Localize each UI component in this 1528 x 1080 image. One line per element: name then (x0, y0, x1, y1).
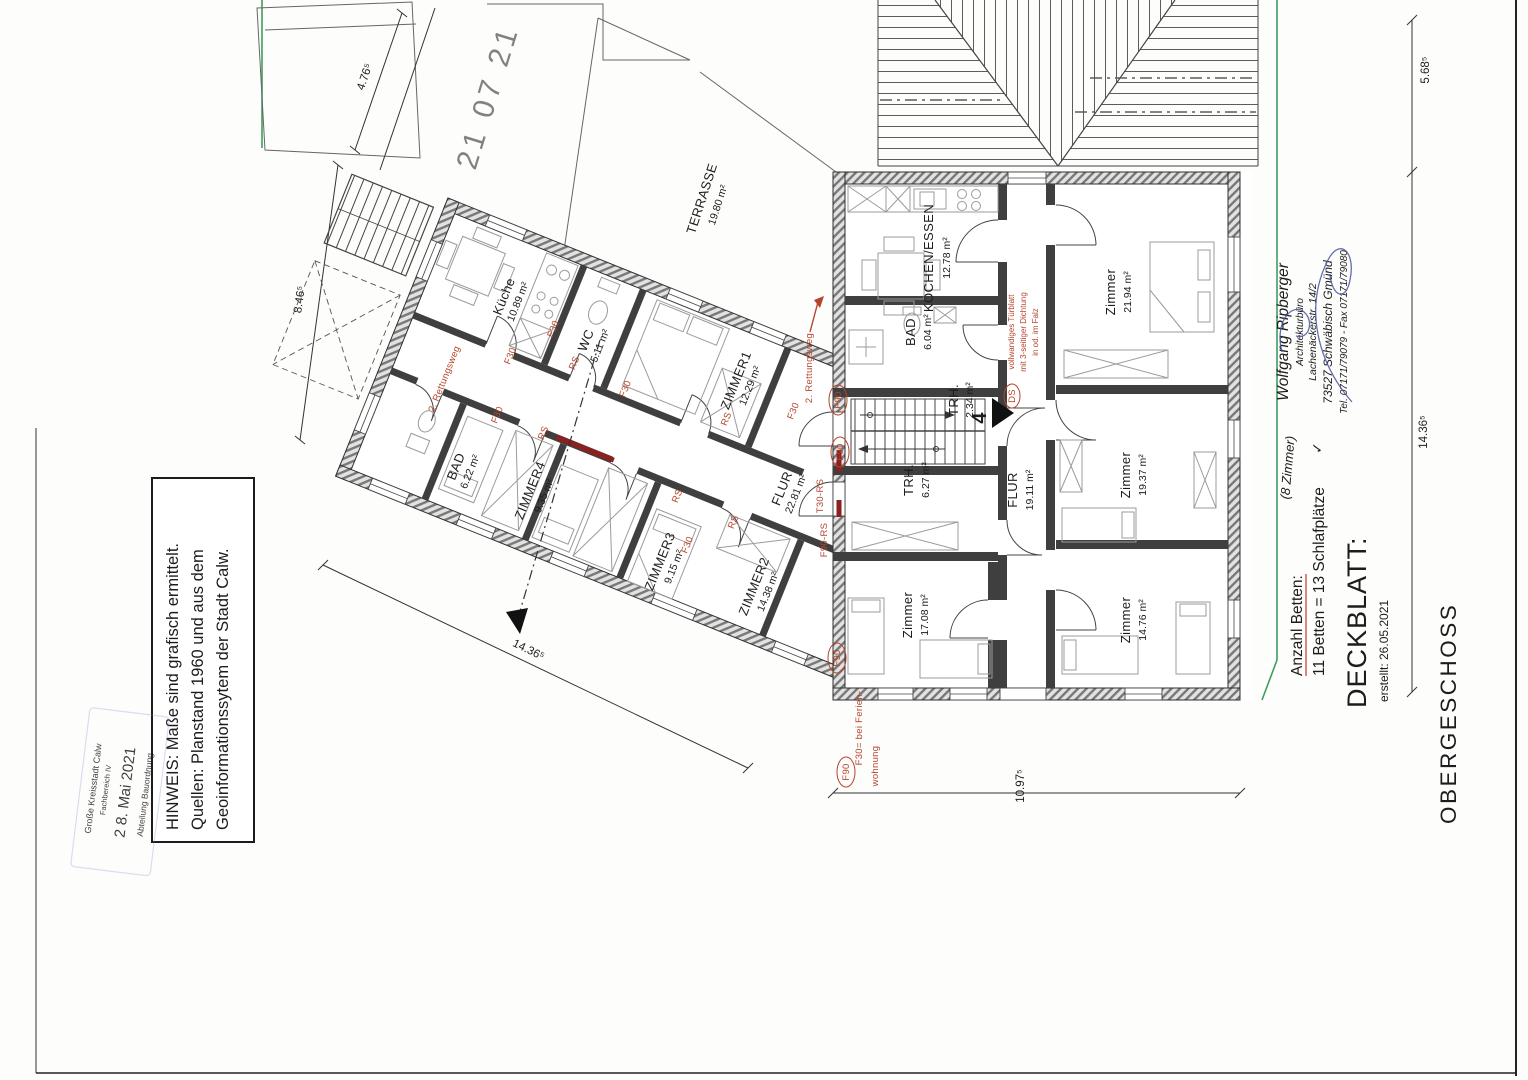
f90-circled-4: F90 (837, 757, 855, 787)
area-trh-gross: 6.27 m² (920, 462, 932, 498)
stair-storey-number: 4 (969, 412, 991, 424)
hinweis-line1: HINWEIS: Maße sind grafisch ermittelt. (164, 543, 182, 830)
label-zimmer-sw: Zimmer (900, 592, 915, 639)
label-flur-rechts: FLUR (1005, 472, 1020, 508)
dim-top-right: 5.68⁵ (1420, 56, 1432, 83)
dim-right: 14.36⁵ (1418, 415, 1430, 449)
door-note-line1: vollwandiges Türblatt (1007, 294, 1016, 370)
architect-block: Wolfgang Ripberger Architekturbüro Lache… (1275, 249, 1352, 414)
area-zimmer-no: 21.94 m² (1122, 271, 1134, 313)
roof-plan (878, 0, 1258, 166)
area-zimmer-so: 14.76 m² (1137, 599, 1149, 641)
label-bad-rechts: BAD (903, 318, 918, 346)
dim-top-left: 4.76⁵ (355, 62, 375, 92)
stamp-d ept-top: Fachbereich IV (98, 764, 113, 815)
svg-text:F90: F90 (832, 649, 843, 666)
dim-left: 8.46⁵ (292, 285, 308, 314)
dim-bottom: 10.97⁵ (1015, 769, 1027, 803)
floor-title: OBERGESCHOSS (1436, 603, 1461, 824)
title-block: DECKBLATT: erstellt: 26.05.2021 OBERGESC… (1342, 536, 1461, 824)
handwritten-room-count: (8 Zimmer) (1277, 435, 1297, 500)
hinweis-line2: Quellen: Planstand 1960 und aus dem (189, 549, 207, 830)
hinweis-line3: Geoinformationssytem der Stadt Calw. (214, 548, 232, 830)
bed-count-value: 11 Betten = 13 Schlafplätze (1311, 487, 1328, 676)
label-zimmer-so: Zimmer (1118, 597, 1133, 644)
scan-watermark: 21 07 21 (450, 21, 525, 173)
svg-text:F90: F90 (833, 391, 844, 408)
ferien-note-line1: F30= bei Ferien- (854, 691, 865, 766)
neighbor-building-outline (257, 2, 420, 158)
ferien-note-line2: wohnung (870, 746, 881, 788)
svg-text:F90: F90 (835, 443, 846, 460)
door-note-line3: in od. im Falz (1031, 308, 1040, 356)
svg-text:2. Rettungsweg: 2. Rettungsweg (804, 333, 815, 403)
svg-text:F90: F90 (841, 763, 852, 780)
label-trh-gross: TRH. (901, 464, 916, 496)
architect-phone: Tel. 07171/79079 - Fax 07171/79080 (1339, 250, 1350, 414)
door-note-line2: mit 3-seitiger Dichtung (1019, 292, 1028, 372)
f90-rs-label: F90-RS (819, 523, 830, 558)
label-kochen: KOCHEN/ESSEN (921, 204, 936, 312)
created-date: erstellt: 26.05.2021 (1377, 600, 1391, 702)
area-kochen: 12.78 m² (941, 237, 953, 279)
architect-office: Architekturbüro (1295, 298, 1306, 367)
bed-count-heading: Anzahl Betten: (1289, 575, 1306, 676)
external-stair (324, 174, 433, 276)
label-zimmer-o: Zimmer (1118, 452, 1133, 499)
svg-text:DS: DS (1007, 389, 1018, 403)
area-zimmer-sw: 17.08 m² (919, 594, 931, 636)
architect-city: 73527 Schwäbisch Gmünd (1321, 260, 1335, 404)
bed-count-note: Anzahl Betten: 11 Betten = 13 Schlafplät… (1289, 487, 1328, 676)
architect-name: Wolfgang Ripberger (1275, 262, 1292, 401)
dim-bottom-left: 14.36⁵ (511, 638, 547, 664)
label-zimmer-no: Zimmer (1103, 269, 1118, 316)
floor-plan-drawing: 21 07 21 4.76⁵ 8.46⁵ 5.68⁵ 14.36⁵ 10.97⁵… (0, 0, 1528, 1080)
right-building (799, 172, 1252, 700)
area-bad-rechts: 6.04 m² (922, 314, 934, 350)
scanned-floor-plan-sheet: 21 07 21 4.76⁵ 8.46⁵ 5.68⁵ 14.36⁵ 10.97⁵… (0, 0, 1528, 1080)
area-flur-rechts: 19.11 m² (1024, 469, 1036, 510)
t30-rs-label: T30-RS (815, 479, 826, 514)
area-zimmer-o: 19.37 m² (1137, 454, 1149, 496)
area-trh-klein: 2.34 m² (964, 382, 976, 418)
handwritten-checkmark: ✓ (1309, 442, 1325, 454)
doc-title: DECKBLATT: (1342, 536, 1372, 708)
label-trh-klein: TRH. (946, 384, 961, 416)
hinweis-note-box: HINWEIS: Maße sind grafisch ermittelt. Q… (152, 478, 254, 842)
